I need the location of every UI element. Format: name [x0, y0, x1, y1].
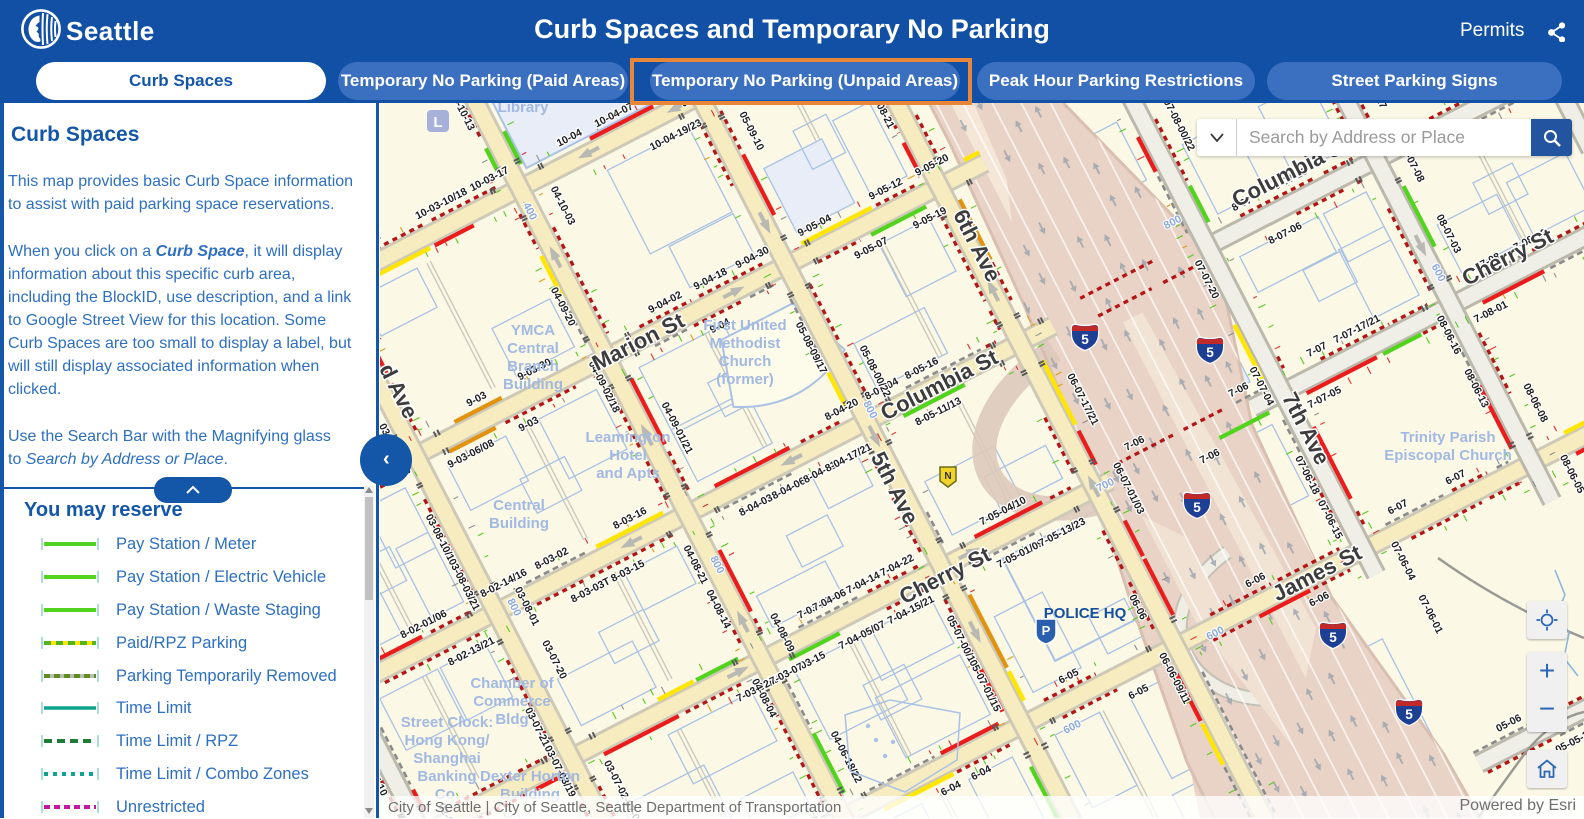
- svg-text:5: 5: [1329, 630, 1337, 645]
- svg-text:Library: Library: [498, 103, 550, 116]
- svg-text:5: 5: [1193, 500, 1201, 515]
- svg-text:5: 5: [1206, 345, 1214, 360]
- svg-text:N: N: [944, 471, 951, 482]
- svg-text:YMCACentralBranchBuilding: YMCACentralBranchBuilding: [503, 322, 563, 393]
- svg-text:Trinity ParishEpiscopal Church: Trinity ParishEpiscopal Church: [1384, 429, 1512, 464]
- svg-text:5: 5: [1405, 707, 1413, 722]
- svg-text:CentralBuilding: CentralBuilding: [489, 497, 549, 532]
- svg-text:P: P: [1042, 623, 1051, 638]
- svg-text:5: 5: [1081, 332, 1089, 347]
- svg-text:L: L: [433, 114, 442, 131]
